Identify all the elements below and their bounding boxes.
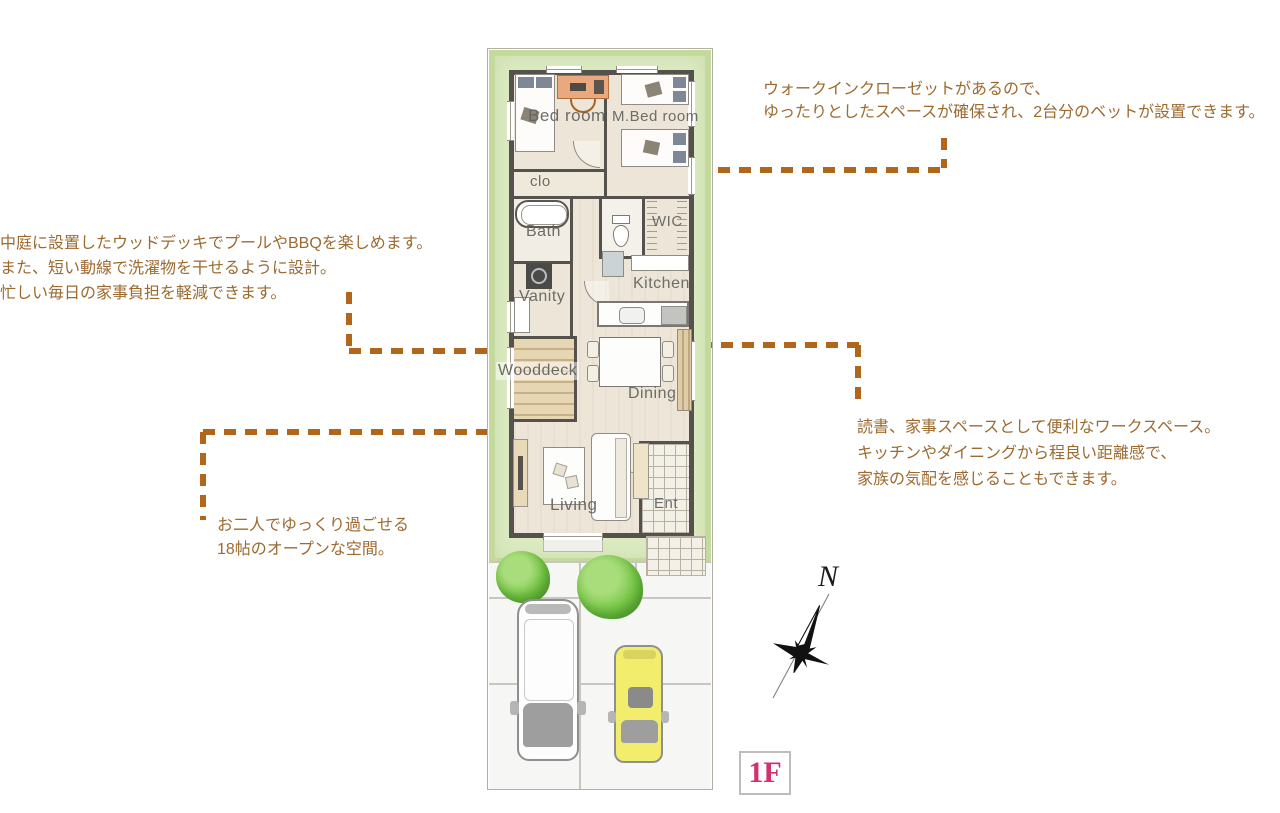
tree-icon xyxy=(496,551,550,603)
room-label-bath: Bath xyxy=(526,223,561,241)
car-mirror xyxy=(661,711,669,723)
window-icon xyxy=(543,533,603,540)
north-label: N xyxy=(817,560,840,593)
chair-icon xyxy=(662,365,674,382)
annotation-line: 家族の気配を感じることもできます。 xyxy=(857,467,1220,493)
shoe-cabinet-icon xyxy=(633,443,649,499)
room-label-bedroom: Bed room xyxy=(528,106,606,126)
floor-plan-page: ウォークインクローゼットがあるので、 ゆったりとしたスペースが確保され、2台分の… xyxy=(0,0,1280,813)
window-icon xyxy=(507,101,514,141)
car-white-icon xyxy=(517,599,579,761)
leader-line xyxy=(200,432,206,520)
car-sunroof xyxy=(628,687,653,708)
washer-drum xyxy=(531,268,547,284)
tree-icon xyxy=(577,555,643,619)
window-icon xyxy=(546,66,582,73)
washing-machine-icon xyxy=(526,263,552,289)
leader-line xyxy=(676,167,947,173)
sink-icon xyxy=(619,307,645,324)
kitchen-counter-icon xyxy=(631,255,689,271)
window-icon xyxy=(616,66,658,73)
room-label-wooddeck: Wooddeck xyxy=(496,362,579,380)
annotation-workspace-text: 読書、家事スペースとして便利なワークスペース。 キッチンやダイニングから程良い距… xyxy=(857,415,1220,493)
floor-badge-label: 1F xyxy=(748,756,781,790)
room-label-ent: Ent xyxy=(654,495,678,512)
bed-icon xyxy=(621,74,689,105)
annotation-line: 中庭に設置したウッドデッキでプールやBBQを楽しめます。 xyxy=(0,231,432,256)
car-roof xyxy=(524,619,574,701)
room-label-vanity: Vanity xyxy=(519,288,565,306)
kitchen-island-icon xyxy=(597,301,689,327)
annotation-line: キッチンやダイニングから程良い距離感で、 xyxy=(857,441,1220,467)
leader-line xyxy=(700,342,860,348)
dining-table-icon xyxy=(599,337,661,387)
window-icon xyxy=(507,301,514,333)
cushion-icon xyxy=(552,462,567,477)
cushion-icon xyxy=(565,475,579,489)
pillow-icon xyxy=(673,133,686,145)
compass-icon: N xyxy=(765,556,875,706)
pillow-icon xyxy=(673,91,686,102)
car-yellow-icon xyxy=(614,645,663,763)
leader-line xyxy=(346,292,352,354)
annotation-line: 忙しい毎日の家事負担を軽減できます。 xyxy=(0,281,432,306)
fridge-icon xyxy=(602,251,624,277)
annotation-living-text: お二人でゆっくり過ごせる 18帖のオープンな空間。 xyxy=(217,514,409,562)
window-icon xyxy=(688,157,695,195)
floor-badge: 1F xyxy=(739,751,791,795)
chair-icon xyxy=(662,341,674,358)
car-rear-window xyxy=(525,604,571,614)
pillow-icon xyxy=(673,77,686,88)
room-label-living: Living xyxy=(550,495,597,515)
cushion-icon xyxy=(645,81,663,97)
annotation-wooddeck-text: 中庭に設置したウッドデッキでプールやBBQを楽しめます。 また、短い動線で洗濯物… xyxy=(0,231,432,306)
car-windshield xyxy=(621,720,658,743)
tv-icon xyxy=(518,456,523,490)
workspace-counter-icon xyxy=(677,329,692,411)
car-windshield xyxy=(523,703,573,747)
cushion-icon xyxy=(643,140,660,156)
tv-board-icon xyxy=(513,439,528,507)
toilet-tank-icon xyxy=(612,215,630,224)
desk-chair-item xyxy=(594,80,604,94)
car-mirror xyxy=(577,701,586,715)
room-closet xyxy=(511,169,607,199)
car-rear-window xyxy=(623,650,656,659)
desk-icon xyxy=(557,75,609,99)
pillow-icon xyxy=(673,151,686,163)
chair-icon xyxy=(587,365,599,382)
bed-icon xyxy=(621,129,689,167)
annotation-line: また、短い動線で洗濯物を干せるように設計。 xyxy=(0,256,432,281)
leader-line xyxy=(855,345,861,401)
leader-line xyxy=(941,138,947,168)
car-mirror xyxy=(608,711,616,723)
room-label-clo: clo xyxy=(530,173,551,190)
pillow-icon xyxy=(536,77,552,88)
room-label-dining: Dining xyxy=(628,385,676,403)
entrance-approach xyxy=(646,536,706,576)
room-label-mbedroom: M.Bed room xyxy=(612,108,699,125)
bathtub-inner xyxy=(521,205,567,225)
annotation-line: お二人でゆっくり過ごせる xyxy=(217,514,409,538)
sofa-back xyxy=(615,438,627,518)
room-label-wic: WIC xyxy=(652,213,683,230)
annotation-wic-text: ウォークインクローゼットがあるので、 ゆったりとしたスペースが確保され、2台分の… xyxy=(763,78,1265,124)
room-label-kitchen: Kitchen xyxy=(633,275,690,293)
stove-icon xyxy=(661,306,687,325)
site-plan: Bed room M.Bed room clo Bath WIC Vanity … xyxy=(487,48,713,790)
annotation-line: ウォークインクローゼットがあるので、 xyxy=(763,78,1265,101)
annotation-line: ゆったりとしたスペースが確保され、2台分のベットが設置できます。 xyxy=(763,101,1265,124)
annotation-line: 18帖のオープンな空間。 xyxy=(217,538,409,562)
car-mirror xyxy=(510,701,519,715)
pillow-icon xyxy=(518,77,534,88)
chair-icon xyxy=(587,341,599,358)
annotation-line: 読書、家事スペースとして便利なワークスペース。 xyxy=(857,415,1220,441)
monitor-icon xyxy=(570,83,586,91)
